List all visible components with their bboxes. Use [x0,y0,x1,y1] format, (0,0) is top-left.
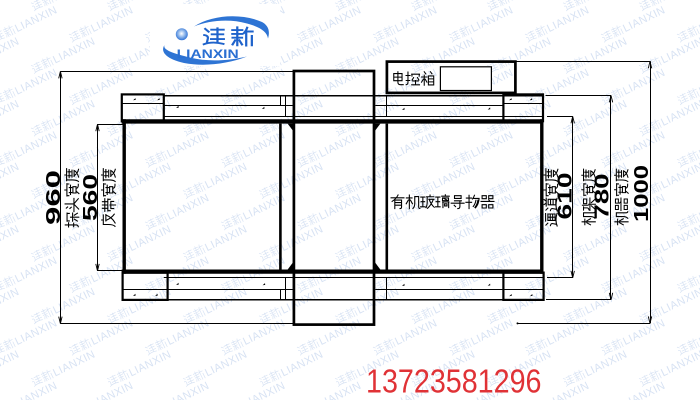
svg-text:780: 780 [591,174,614,220]
svg-text:610: 610 [554,173,577,220]
svg-text:1000: 1000 [630,165,653,222]
svg-text:LIANXIN: LIANXIN [177,49,239,61]
svg-text:560: 560 [79,174,102,221]
svg-text:13723581296: 13723581296 [366,364,542,400]
svg-text:960: 960 [42,170,65,225]
